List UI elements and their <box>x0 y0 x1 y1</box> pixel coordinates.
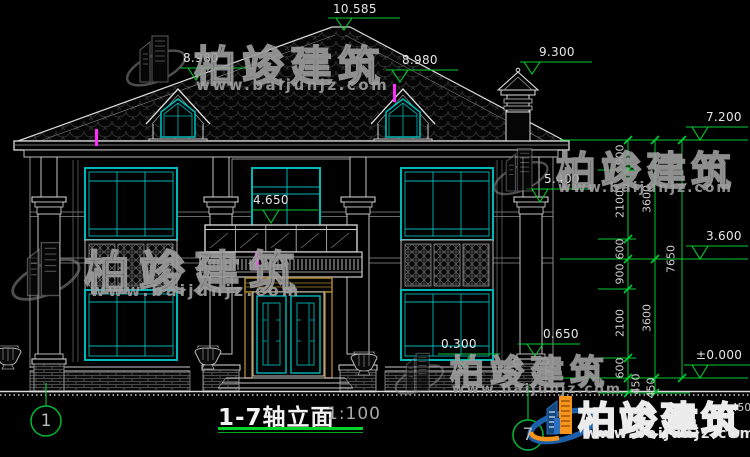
elevation-label: 0.650 <box>543 327 579 341</box>
dimension-label: 2100 <box>614 309 627 337</box>
elevation-label: 3.600 <box>706 229 742 243</box>
window-right <box>401 168 493 360</box>
elevation-label: 10.585 <box>333 2 377 16</box>
axis-bubble-7: 7 <box>513 425 543 445</box>
dimension-label: 600 <box>614 358 627 379</box>
drawing-scale: 1:100 <box>327 404 381 424</box>
dimension-label: 3600 <box>641 304 654 332</box>
elevation-label: ±0.000 <box>696 348 742 362</box>
watermark-url: www.baijunjz.com <box>196 76 389 94</box>
title-underline-thin <box>218 432 363 433</box>
elevation-label: 7.200 <box>706 110 742 124</box>
door-leaf-right <box>291 296 320 373</box>
elevation-label: 9.300 <box>539 45 575 59</box>
watermark-url: www.baijunjz.com <box>90 281 301 300</box>
urn-far-left <box>0 346 21 369</box>
title-underline <box>218 427 363 430</box>
elevation-label: 4.650 <box>253 193 289 207</box>
watermark-url: www.baijunjz.com <box>558 180 733 196</box>
axis-bubble-1: 1 <box>31 411 61 431</box>
dimension-label: 600 <box>614 239 627 260</box>
brand-logo-url: www.baijunjz.com <box>584 426 750 442</box>
dimension-label: 7650 <box>665 245 678 273</box>
cad-canvas: 10.585 8.980 8.980 9.300 7.200 5.400 4.6… <box>0 0 750 457</box>
elevation-label: 8.980 <box>402 53 438 67</box>
dimension-label: 900 <box>614 264 627 285</box>
door-leaf-left <box>257 296 286 373</box>
